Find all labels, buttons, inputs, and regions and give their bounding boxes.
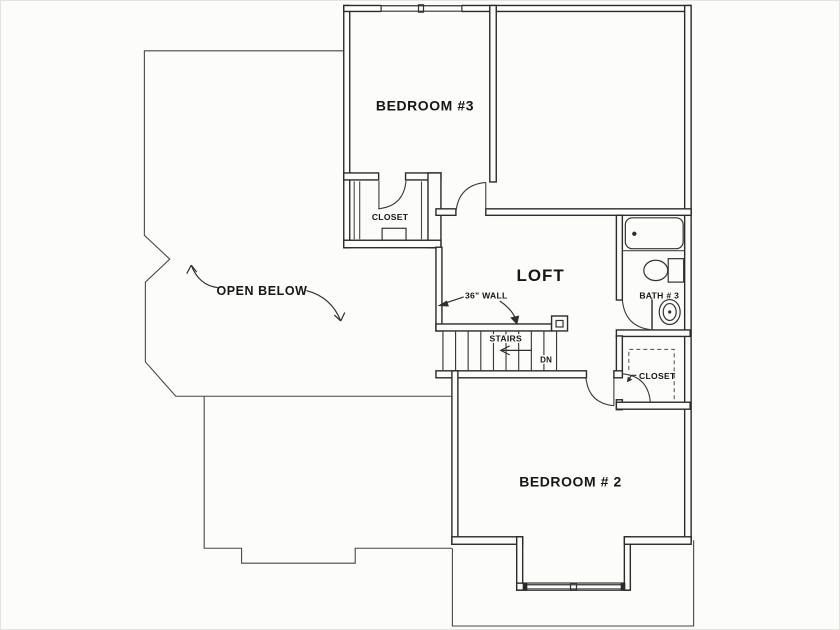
open-below-arrow-left (187, 265, 218, 287)
loft-label: LOFT (517, 266, 565, 285)
hall-closet-label: CLOSET (639, 371, 676, 381)
floor-plan-page: BEDROOM #3 CLOSET LOFT 36" WALL STAIRS D… (0, 0, 840, 630)
wall-loft-top (486, 209, 691, 215)
bathtub-drain (632, 232, 636, 236)
wall-loft-left (436, 247, 442, 331)
wall-closet3-bottom (344, 240, 441, 247)
bedroom3-window (381, 4, 462, 13)
bath3-door (622, 300, 652, 330)
annotation-arrows (187, 265, 637, 382)
wall-bay-left (517, 537, 523, 590)
bedroom2-door (586, 378, 614, 406)
bedroom2-label: BEDROOM # 2 (519, 473, 622, 489)
closet-label-leader (627, 375, 636, 382)
stairs-label: STAIRS (489, 333, 522, 343)
wall-right-exterior (685, 5, 691, 540)
lower-floor-step-outline (204, 396, 452, 563)
wall-bedroom3-left (344, 5, 350, 247)
stairs-down-arrow (501, 346, 532, 355)
newel-post (552, 316, 568, 331)
wall-bedroom2-top-stub (614, 371, 622, 378)
wall-loft-half-wall (436, 324, 552, 331)
open-below-outline (144, 51, 693, 626)
wall-bedroom2-left (452, 371, 458, 544)
open-below-label: OPEN BELOW (216, 284, 307, 298)
bedroom3-entry-door (456, 182, 486, 212)
wall-note-arrow-right (500, 301, 519, 325)
wall-closet-hall-bottom (616, 402, 690, 409)
wall-loft-top-stub (436, 209, 456, 215)
bedroom2-bay-window (523, 583, 625, 590)
bath3-label: BATH # 3 (639, 291, 679, 301)
bedroom3-closet-door (378, 181, 406, 209)
toilet (644, 259, 684, 282)
sink (659, 300, 680, 325)
wall-bath-bottom (616, 330, 690, 336)
wall-bath-left (616, 215, 622, 300)
wall-closet3-top-left (344, 173, 379, 180)
wall-closet-hall-left (616, 336, 622, 376)
bedroom3-label: BEDROOM #3 (376, 98, 474, 114)
labels: BEDROOM #3 CLOSET LOFT 36" WALL STAIRS D… (216, 98, 679, 490)
bedroom3-closet-label: CLOSET (372, 212, 409, 222)
open-below-arrow-right (306, 291, 344, 321)
closet-dresser (382, 228, 406, 240)
wall-bedroom2-bottom-left (452, 537, 523, 544)
bath-fixtures (622, 218, 684, 329)
wall-bedroom3-right (490, 5, 496, 181)
floor-plan-drawing: BEDROOM #3 CLOSET LOFT 36" WALL STAIRS D… (1, 1, 839, 629)
wall-bedroom2-bottom-right (624, 537, 691, 544)
wall-note-label: 36" WALL (465, 291, 508, 301)
stairs-direction-label: DN (540, 355, 552, 364)
